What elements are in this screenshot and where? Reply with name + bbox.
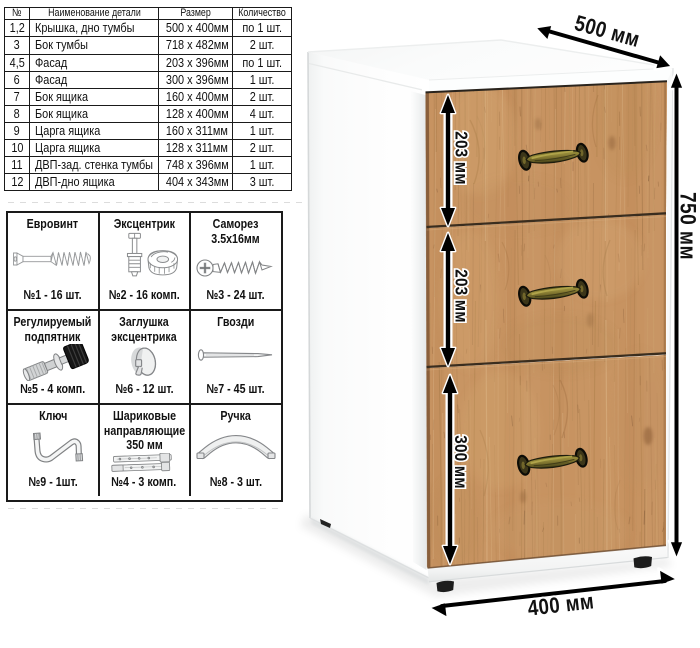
svg-text:300 мм: 300 мм [451,435,471,488]
svg-text:750 мм: 750 мм [675,192,700,260]
svg-text:203 мм: 203 мм [451,131,471,184]
svg-text:203 мм: 203 мм [451,269,471,322]
